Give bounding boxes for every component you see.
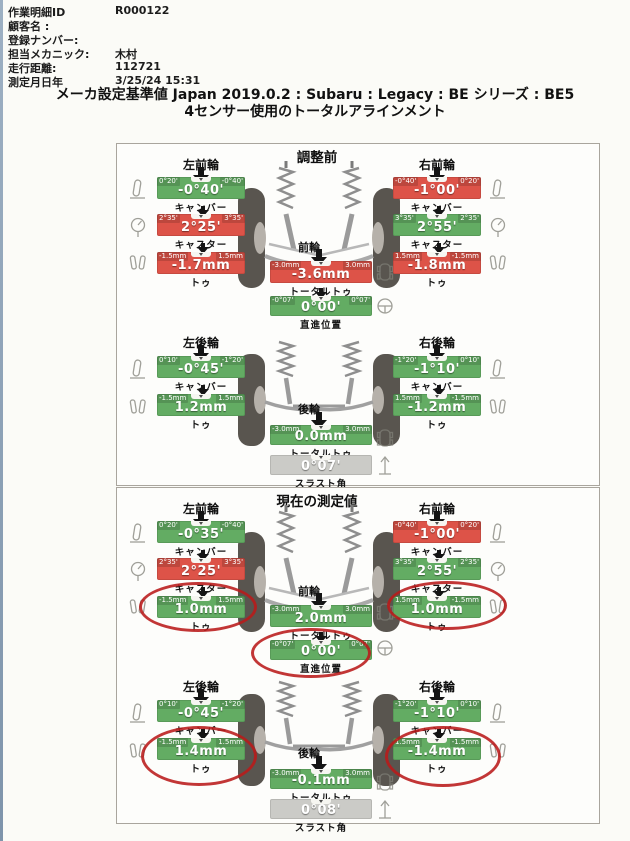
header-field-work-id: 作業明細IDR000122 bbox=[0, 4, 630, 18]
thrust-angle-meter: 0°08' スラスト角 bbox=[270, 799, 372, 834]
vehicle-icon bbox=[376, 261, 394, 285]
thrust-icon bbox=[376, 798, 394, 822]
caster-icon bbox=[489, 216, 507, 240]
steering-icon bbox=[376, 638, 394, 662]
scan-edge-artifact bbox=[0, 0, 3, 841]
vehicle-icon bbox=[376, 427, 394, 451]
caster-icon bbox=[129, 216, 147, 240]
report-title-line1: メーカ設定基準値 Japan 2019.0.2 : Subaru : Legac… bbox=[0, 87, 630, 104]
camber-icon bbox=[489, 358, 507, 382]
camber-icon bbox=[129, 178, 147, 202]
lr-toe-meter: -1.5mm1.5mm1.2mm トゥ bbox=[157, 394, 245, 431]
alignment-report-page: 作業明細IDR000122 顧客名 : 登録ナンバー: 担当メカニック:木村 走… bbox=[0, 0, 630, 841]
lf-caster-bar: 2°35'3°35'2°25' bbox=[157, 558, 245, 580]
toe-icon bbox=[489, 396, 507, 420]
panel-before-adjustment: 調整前 左前輪 右前輪 0°20'-0°40'-0°40' キャンバー bbox=[116, 143, 600, 486]
rf-toe-meter: 1.5mm-1.5mm-1.8mm トゥ bbox=[393, 252, 481, 289]
caster-icon bbox=[129, 560, 147, 584]
rr-camber-bar: -1°20'0°10'-1°10' bbox=[393, 356, 481, 378]
toe-icon bbox=[489, 252, 507, 276]
camber-icon bbox=[129, 702, 147, 726]
thrust-angle-bar: 0°08' bbox=[270, 799, 372, 819]
rear-total-toe-bar: -3.0mm3.0mm-0.1mm bbox=[270, 769, 372, 789]
camber-icon bbox=[489, 178, 507, 202]
lf-toe-meter: -1.5mm1.5mm-1.7mm トゥ bbox=[157, 252, 245, 289]
vehicle-icon bbox=[376, 771, 394, 795]
straight-ahead-meter: -0°07'0°07'0°00' 直進位置 bbox=[270, 296, 372, 331]
straight-ahead-bar: -0°07'0°07'0°00' bbox=[270, 296, 372, 316]
lr-toe-bar: -1.5mm1.5mm1.2mm bbox=[157, 394, 245, 416]
rf-toe-bar: 1.5mm-1.5mm-1.8mm bbox=[393, 252, 481, 274]
toe-icon bbox=[129, 396, 147, 420]
front-total-toe-bar: -3.0mm3.0mm2.0mm bbox=[270, 605, 372, 627]
rf-camber-bar: -0°40'0°20'-1°00' bbox=[393, 177, 481, 199]
camber-icon bbox=[489, 702, 507, 726]
report-title-line2: 4センサー使用のトータルアラインメント bbox=[0, 104, 630, 121]
red-circle-annotation-lf-toe bbox=[139, 582, 257, 632]
toe-icon bbox=[129, 252, 147, 276]
header-field-customer: 顧客名 : bbox=[0, 18, 630, 32]
panel-current-measurement: 現在の測定値 左前輪 右前輪 0°20'-0°40'-0°35' キャンバー bbox=[116, 487, 600, 824]
header-field-mechanic: 担当メカニック:木村 bbox=[0, 46, 630, 60]
thrust-angle-bar: 0°07' bbox=[270, 455, 372, 475]
camber-icon bbox=[129, 358, 147, 382]
lf-camber-bar: 0°20'-0°40'-0°35' bbox=[157, 521, 245, 543]
red-circle-annotation-straight bbox=[251, 628, 371, 678]
lr-camber-bar: 0°10'-1°20'-0°45' bbox=[157, 700, 245, 722]
camber-icon bbox=[489, 522, 507, 546]
header-field-mileage: 走行距離:112721 bbox=[0, 60, 630, 74]
thrust-angle-meter: 0°07' スラスト角 bbox=[270, 455, 372, 490]
caster-icon bbox=[489, 560, 507, 584]
rr-toe-meter: 1.5mm-1.5mm-1.2mm トゥ bbox=[393, 394, 481, 431]
rf-caster-bar: 3°35'2°35'2°55' bbox=[393, 558, 481, 580]
lf-toe-bar: -1.5mm1.5mm-1.7mm bbox=[157, 252, 245, 274]
rear-axle-label: 後輪 bbox=[279, 745, 339, 761]
lf-camber-bar: 0°20'-0°40'-0°40' bbox=[157, 177, 245, 199]
front-axle-label: 前輪 bbox=[279, 239, 339, 255]
front-axle-label: 前輪 bbox=[279, 583, 339, 599]
rear-total-toe-bar: -3.0mm3.0mm0.0mm bbox=[270, 425, 372, 445]
rr-toe-bar: 1.5mm-1.5mm-1.2mm bbox=[393, 394, 481, 416]
front-total-toe-bar: -3.0mm3.0mm-3.6mm bbox=[270, 261, 372, 283]
red-circle-annotation-rf-toe bbox=[387, 581, 507, 630]
thrust-icon bbox=[376, 454, 394, 478]
steering-icon bbox=[376, 296, 394, 320]
rf-caster-bar: 3°35'2°35'2°55' bbox=[393, 214, 481, 236]
header-field-date: 測定月日年3/25/24 15:31 bbox=[0, 74, 630, 88]
header-field-plate: 登録ナンバー: bbox=[0, 32, 630, 46]
lf-caster-bar: 2°35'3°35'2°25' bbox=[157, 214, 245, 236]
rear-axle-label: 後輪 bbox=[279, 401, 339, 417]
lr-camber-bar: 0°10'-1°20'-0°45' bbox=[157, 356, 245, 378]
camber-icon bbox=[129, 522, 147, 546]
red-circle-annotation-lr-toe bbox=[141, 726, 257, 786]
rr-camber-bar: -1°20'0°10'-1°10' bbox=[393, 700, 481, 722]
red-circle-annotation-rr-toe bbox=[385, 726, 501, 787]
rf-camber-bar: -0°40'0°20'-1°00' bbox=[393, 521, 481, 543]
